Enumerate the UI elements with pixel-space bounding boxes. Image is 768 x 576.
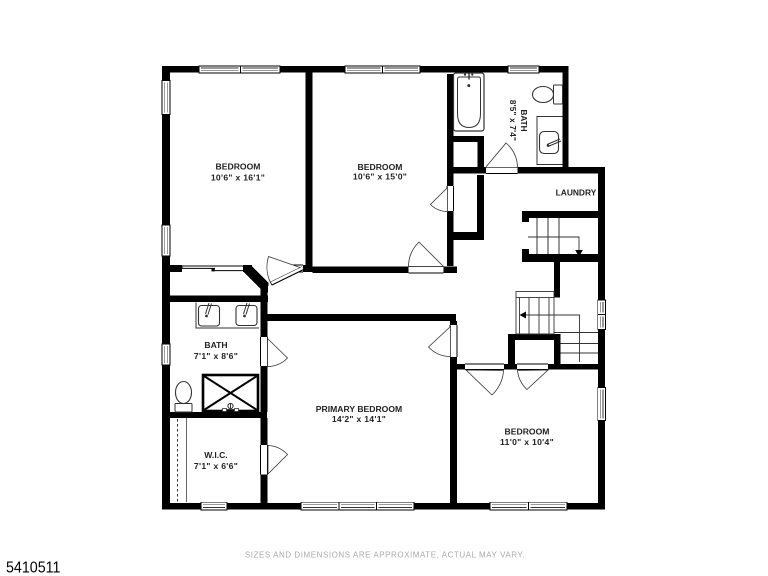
svg-text:14'2" x 14'1": 14'2" x 14'1" xyxy=(332,414,386,424)
svg-text:BEDROOM: BEDROOM xyxy=(358,162,403,172)
svg-text:8'5" x 7'4": 8'5" x 7'4" xyxy=(508,100,517,141)
svg-text:7'1" x 8'6": 7'1" x 8'6" xyxy=(194,351,238,361)
svg-text:5410511: 5410511 xyxy=(6,560,61,576)
svg-text:11'0" x 10'4": 11'0" x 10'4" xyxy=(500,437,554,447)
svg-text:SIZES AND DIMENSIONS ARE APPRO: SIZES AND DIMENSIONS ARE APPROXIMATE, AC… xyxy=(245,551,525,560)
svg-text:LAUNDRY: LAUNDRY xyxy=(556,188,597,198)
svg-text:10'6" x 15'0": 10'6" x 15'0" xyxy=(353,172,407,182)
svg-text:10'6" x 16'1": 10'6" x 16'1" xyxy=(211,173,265,183)
svg-text:W.I.C.: W.I.C. xyxy=(204,450,227,460)
svg-text:PRIMARY BEDROOM: PRIMARY BEDROOM xyxy=(316,404,402,414)
svg-text:7'1" x 6'6": 7'1" x 6'6" xyxy=(194,461,238,471)
svg-text:BATH: BATH xyxy=(519,109,528,131)
svg-text:BEDROOM: BEDROOM xyxy=(505,427,550,437)
svg-text:BEDROOM: BEDROOM xyxy=(216,162,261,172)
svg-text:BATH: BATH xyxy=(204,340,227,350)
